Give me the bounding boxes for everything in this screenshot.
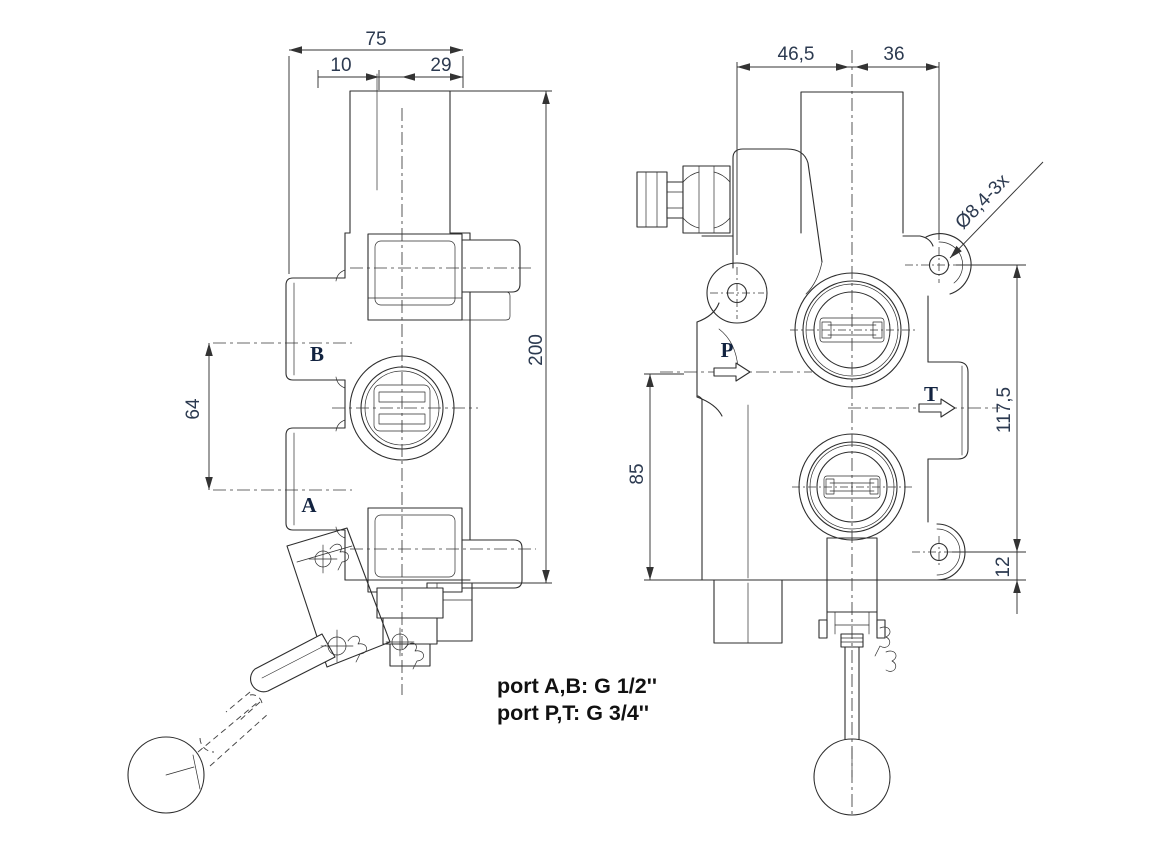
valve-dimension-drawing: 75 10 29 200 xyxy=(0,0,1169,846)
lever-phantom-lines xyxy=(198,692,268,766)
dim-75: 75 xyxy=(365,29,386,50)
note-line-1: port A,B: G 1/2'' xyxy=(497,674,657,698)
dim-10: 10 xyxy=(330,55,351,76)
dim-85-lines xyxy=(644,374,700,580)
dim-64-lines xyxy=(205,343,213,490)
relief-valve-screw xyxy=(637,166,730,233)
right-view: 46,5 36 117,5 12 xyxy=(627,44,1043,818)
clevis-joint xyxy=(819,612,896,671)
port-label-b: B xyxy=(310,342,324,366)
retaining-clip xyxy=(886,651,896,671)
port-thread-notes: port A,B: G 1/2'' port P,T: G 3/4'' xyxy=(497,674,657,725)
dim-117-5: 117,5 xyxy=(994,387,1015,433)
dim-64: 64 xyxy=(183,398,204,420)
dim-12: 12 xyxy=(993,556,1014,577)
port-label-p: P xyxy=(721,338,734,362)
technical-drawing-page: 75 10 29 200 xyxy=(0,0,1169,846)
dim-200: 200 xyxy=(526,334,547,366)
dim-29: 29 xyxy=(430,55,451,76)
port-label-t: T xyxy=(924,382,938,406)
left-view: 75 10 29 200 xyxy=(128,29,552,813)
dim-46-5: 46,5 xyxy=(778,44,815,65)
spool-end-caps xyxy=(377,588,443,666)
lever-arm xyxy=(251,634,335,692)
ball-handle-side xyxy=(128,737,204,813)
note-line-2: port P,T: G 3/4'' xyxy=(497,701,649,725)
dim-85: 85 xyxy=(627,463,648,484)
port-label-a: A xyxy=(301,493,317,517)
dim-36: 36 xyxy=(883,44,904,65)
left-view-fills xyxy=(286,91,522,667)
